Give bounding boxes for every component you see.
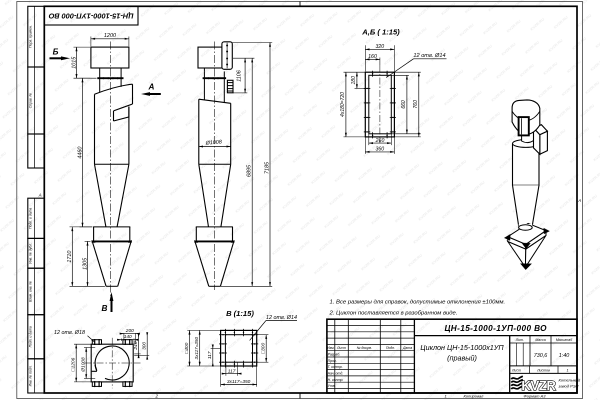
svg-text:300: 300 <box>142 342 148 350</box>
svg-text:Т. контр.: Т. контр. <box>328 365 343 369</box>
svg-text:Справ. №: Справ. № <box>29 92 33 108</box>
svg-text:200: 200 <box>125 328 134 334</box>
svg-text:260: 260 <box>375 138 385 144</box>
svg-text:Б: Б <box>53 48 59 57</box>
svg-text:1: 1 <box>566 368 568 372</box>
svg-text:1200: 1200 <box>104 33 117 39</box>
svg-text:ЦН-15-1000-1УП-000 ВО: ЦН-15-1000-1УП-000 ВО <box>444 324 547 333</box>
svg-text:Дата: Дата <box>402 346 412 350</box>
svg-text:240: 240 <box>133 341 139 350</box>
svg-text:Взам. инв. №: Взам. инв. № <box>29 281 33 302</box>
svg-text:660: 660 <box>401 100 407 109</box>
svg-text:140: 140 <box>124 334 132 340</box>
svg-text:6895: 6895 <box>247 164 253 177</box>
svg-text:А: А <box>38 193 42 198</box>
svg-text:Утв.: Утв. <box>328 384 336 388</box>
svg-text:180: 180 <box>351 76 357 85</box>
svg-text:Котельный: Котельный <box>559 377 582 382</box>
svg-text:Нач. отд.: Нач. отд. <box>328 372 344 376</box>
svg-text:А: А <box>148 83 155 92</box>
svg-text:Лист: Лист <box>511 368 521 372</box>
svg-text:Разраб.: Разраб. <box>328 353 341 357</box>
svg-text:Масса: Масса <box>535 338 545 342</box>
svg-text:2: 2 <box>154 394 158 399</box>
svg-text:12 отв. Ø14: 12 отв. Ø14 <box>413 53 445 59</box>
svg-text:320: 320 <box>375 44 384 50</box>
svg-text:12 отв. Ø14: 12 отв. Ø14 <box>266 315 297 321</box>
svg-text:3х117=350: 3х117=350 <box>194 336 199 359</box>
svg-text:1. Все размеры для справок: 1. Все размеры для справок, допустимые о… <box>330 299 506 305</box>
svg-text:160: 160 <box>368 54 377 60</box>
svg-text:Перв. примен.: Перв. примен. <box>29 25 33 48</box>
svg-text:360: 360 <box>375 147 384 153</box>
svg-text:Циклон ЦН-15-1000х1УП: Циклон ЦН-15-1000х1УП <box>420 343 504 352</box>
svg-text:Подп. и дата: Подп. и дата <box>29 208 33 229</box>
svg-text:12 отв. Ø18: 12 отв. Ø18 <box>54 330 85 336</box>
svg-text:ЦН-15-1000-1УП-000 ВО: ЦН-15-1000-1УП-000 ВО <box>48 12 133 21</box>
svg-text:4х180=720: 4х180=720 <box>340 92 346 117</box>
svg-text:Н. контр.: Н. контр. <box>328 378 344 382</box>
svg-text:Инв. № подл.: Инв. № подл. <box>29 365 33 386</box>
svg-text:Листов: Листов <box>536 368 550 372</box>
svg-text:А: А <box>577 198 581 203</box>
svg-text:2. Циклон поставляется в р: 2. Циклон поставляется в разобранном вид… <box>329 311 458 317</box>
svg-text:Подп.: Подп. <box>386 346 395 350</box>
svg-text:№ докум.: № докум. <box>357 346 372 350</box>
svg-text:(правый): (правый) <box>447 353 477 362</box>
svg-text:А,Б ( 1:15): А,Б ( 1:15) <box>361 28 400 37</box>
svg-text:1: 1 <box>444 394 446 399</box>
svg-text:7185: 7185 <box>264 161 270 174</box>
svg-text:Масштаб: Масштаб <box>556 338 573 342</box>
svg-text:3х117=350: 3х117=350 <box>227 379 251 385</box>
svg-text:Формат А3: Формат А3 <box>524 394 547 399</box>
svg-text:Ø1008: Ø1008 <box>204 139 222 146</box>
svg-text:Лист: Лист <box>336 346 346 350</box>
svg-text:117: 117 <box>207 351 213 359</box>
svg-text:1305: 1305 <box>82 257 88 270</box>
svg-text:117: 117 <box>228 368 236 374</box>
svg-text:730,6: 730,6 <box>534 353 548 359</box>
svg-text:□1206: □1206 <box>71 357 77 371</box>
svg-text:Инв. № дубл.: Инв. № дубл. <box>29 243 33 264</box>
svg-text:1:40: 1:40 <box>559 353 570 359</box>
svg-text:□400: □400 <box>184 342 190 353</box>
svg-text:1106: 1106 <box>237 70 243 82</box>
svg-text:завод РЭП: завод РЭП <box>558 383 579 388</box>
svg-text:1015: 1015 <box>71 56 77 69</box>
svg-text:4460: 4460 <box>77 147 83 159</box>
svg-text:Подп. и дата: Подп. и дата <box>29 326 33 347</box>
svg-text:Копировал: Копировал <box>464 394 485 399</box>
svg-text:В (1:15): В (1:15) <box>226 309 254 318</box>
svg-text:760: 760 <box>413 100 419 109</box>
svg-text:Изм.: Изм. <box>327 346 334 350</box>
svg-text:Пров.: Пров. <box>328 359 337 363</box>
svg-text:□300: □300 <box>261 343 267 354</box>
svg-text:KVZR: KVZR <box>521 378 556 393</box>
svg-text:1710: 1710 <box>67 251 73 263</box>
svg-text:Ø1008: Ø1008 <box>81 357 87 373</box>
svg-text:В: В <box>102 304 108 313</box>
svg-text:Лит.: Лит. <box>515 338 524 342</box>
